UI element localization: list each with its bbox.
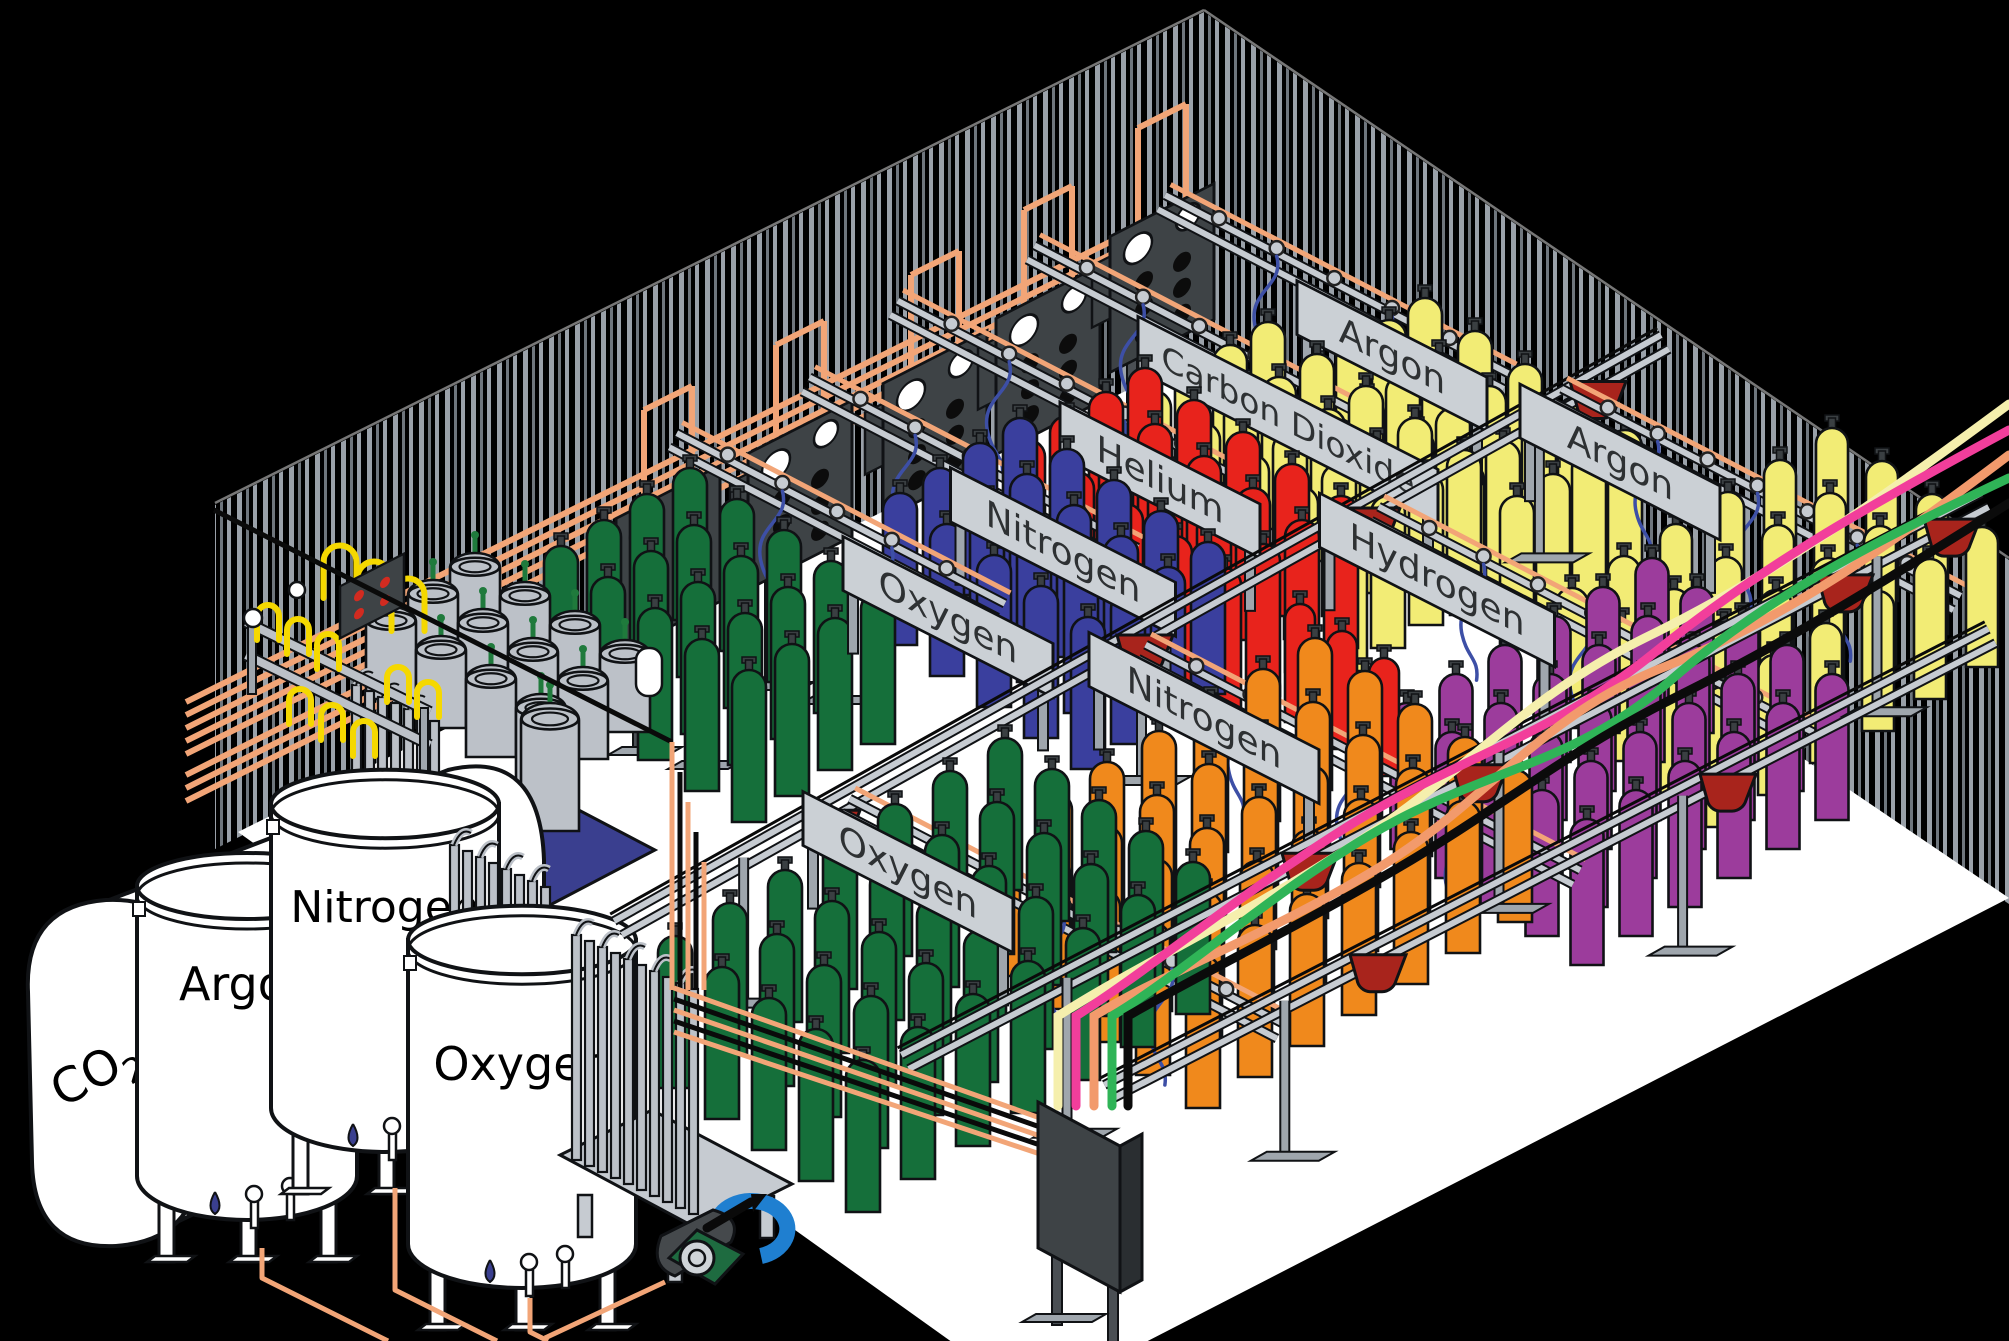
cylinder-body	[685, 639, 719, 791]
cylinder-valve-stem	[1276, 367, 1283, 377]
cylinder-valve-stem	[892, 794, 899, 804]
cylinder-valve-stem	[1002, 728, 1009, 738]
cylinder-valve-stem	[601, 510, 608, 520]
cylinder-valve-stem	[785, 577, 792, 587]
tank-valve	[521, 1254, 537, 1270]
cylinder-valve-stem	[1080, 918, 1087, 928]
cylinder-valve-stem	[1550, 464, 1557, 474]
cylinder-valve-stem	[1829, 664, 1836, 674]
cylinder-body	[818, 618, 852, 770]
cylinder-valve-stem	[1412, 694, 1419, 704]
hose-fitting	[775, 476, 789, 490]
tank-valve	[557, 1246, 573, 1262]
cylinder-valve-stem	[781, 520, 788, 530]
cylinder-valve-stem	[1143, 821, 1150, 831]
dewar-valve-knob	[521, 560, 529, 568]
vaporizer-tube	[572, 935, 581, 1160]
vaporizer-tube	[689, 989, 698, 1214]
cylinder-valve-stem	[1671, 579, 1678, 589]
hose-fitting	[830, 504, 844, 518]
cylinder-body	[732, 670, 766, 822]
cylinder-valve-stem	[970, 984, 977, 994]
cylinder-valve-stem	[1929, 484, 1936, 494]
cylinder-valve-stem	[789, 634, 796, 644]
gas-cylinder	[818, 605, 852, 770]
hose-fitting	[1192, 319, 1206, 333]
cylinder-valve-stem	[1250, 478, 1257, 488]
rim-clip	[267, 820, 279, 834]
gas-cylinder	[775, 631, 809, 796]
cylinder-valve-stem	[774, 924, 781, 934]
cylinder-valve-stem	[1206, 754, 1213, 764]
dewar-valve-knob	[571, 589, 579, 597]
panel-foot	[1022, 1314, 1106, 1322]
cylinder-valve-stem	[1049, 759, 1056, 769]
vaporizer-tube	[624, 959, 633, 1184]
tank-valve	[384, 1118, 400, 1134]
cylinder-valve-stem	[1265, 312, 1272, 322]
cylinder-valve-stem	[1205, 532, 1212, 542]
tank-foot	[418, 1324, 466, 1330]
hose-fitting	[1136, 290, 1150, 304]
cylinder-valve-stem	[1621, 546, 1628, 556]
cylinder-valve-stem	[829, 891, 836, 901]
hose-fitting	[1422, 521, 1436, 535]
canister	[636, 648, 662, 696]
cylinder-valve-stem	[699, 629, 706, 639]
cylinder-valve-stem	[1314, 344, 1321, 354]
cylinder-valve-stem	[1723, 547, 1730, 557]
vaporizer-tube	[676, 983, 685, 1208]
cylinder-valve-stem	[1103, 382, 1110, 392]
cylinder-valve-stem	[868, 986, 875, 996]
hose-fitting	[1701, 452, 1715, 466]
hose-fitting	[945, 317, 959, 331]
cylinder-valve-stem	[1498, 693, 1505, 703]
hose-fitting	[1750, 478, 1764, 492]
cylinder-valve-stem	[977, 433, 984, 443]
cylinder-valve-stem	[1299, 510, 1306, 520]
pump-inlet	[680, 1241, 714, 1275]
rim-clip	[133, 902, 145, 916]
cylinder-valve-stem	[605, 567, 612, 577]
cylinder-valve-stem	[1339, 621, 1346, 631]
cylinder-valve-stem	[1260, 659, 1267, 669]
cylinder-valve-stem	[1033, 887, 1040, 897]
cylinder-valve-stem	[1725, 482, 1732, 492]
vaporizer-tube	[585, 941, 594, 1166]
cylinder-valve-stem	[738, 546, 745, 556]
cylinder-valve-stem	[1190, 852, 1197, 862]
cylinder-valve-stem	[1731, 722, 1738, 732]
cylinder-valve-stem	[1775, 515, 1782, 525]
hose-fitting	[1060, 377, 1074, 391]
cylinder-valve-stem	[994, 792, 1001, 802]
cylinder-valve-stem	[687, 458, 694, 468]
rail-post-foot	[1251, 1152, 1335, 1161]
cylinder-valve-stem	[1071, 495, 1078, 505]
cylinder-valve-stem	[1240, 422, 1247, 432]
plant-diagram: ArgonCarbon DioxideHeliumNitrogenOxygenC…	[0, 0, 2009, 1341]
cylinder-valve-stem	[1645, 606, 1652, 616]
hose-fitting	[1800, 504, 1814, 518]
cylinder-valve-stem	[1637, 722, 1644, 732]
dewar-valve-knob	[621, 618, 629, 626]
cylinder-valve-stem	[937, 458, 944, 468]
cylinder-valve-stem	[766, 988, 773, 998]
vaporizer-tube	[650, 971, 659, 1196]
cylinder-valve-stem	[719, 957, 726, 967]
hose-fitting	[940, 561, 954, 575]
cylinder-valve-stem	[1085, 607, 1092, 617]
cylinder-valve-stem	[727, 893, 734, 903]
dewar-valve-knob	[471, 531, 479, 539]
cylinder-valve-stem	[1649, 548, 1656, 558]
cylinder-valve-stem	[1118, 526, 1125, 536]
cylinder-valve-stem	[1191, 390, 1198, 400]
gas-cylinder	[1816, 661, 1849, 820]
cylinder-valve-stem	[1025, 951, 1032, 961]
cylinder-valve-stem	[1522, 354, 1529, 364]
cylinder-valve-stem	[832, 608, 839, 618]
cylinder-valve-stem	[1201, 446, 1208, 456]
cylinder-valve-stem	[746, 660, 753, 670]
cylinder-valve-stem	[1877, 516, 1884, 526]
cylinder-valve-stem	[1381, 648, 1388, 658]
cylinder-valve-stem	[1412, 408, 1419, 418]
hose-fitting	[1477, 549, 1491, 563]
vaporizer-tube	[663, 977, 672, 1202]
cylinder-valve-stem	[1422, 288, 1429, 298]
cylinder-valve-stem	[1325, 399, 1332, 409]
hose-fitting	[1601, 401, 1615, 415]
cylinder-valve-stem	[1227, 335, 1234, 345]
cylinder-valve-stem	[923, 953, 930, 963]
cylinder-valve-stem	[947, 761, 954, 771]
vaporizer-tube	[598, 947, 607, 1172]
cylinder-valve-stem	[1569, 578, 1576, 588]
dewar-valve-knob	[579, 645, 587, 653]
cylinder-valve-stem	[986, 856, 993, 866]
cylinder-valve-stem	[644, 484, 651, 494]
hose-fitting	[1080, 261, 1094, 275]
cylinder-valve-stem	[691, 515, 698, 525]
tank-foot	[309, 1256, 357, 1262]
cylinder-valve-stem	[1363, 376, 1370, 386]
cylinder-valve-stem	[1362, 661, 1369, 671]
cylinder-valve-stem	[1462, 727, 1469, 737]
cylinder-valve-stem	[897, 483, 904, 493]
hose-fitting	[853, 392, 867, 406]
tank-foot	[147, 1256, 195, 1262]
rail-post-foot	[1649, 947, 1733, 956]
hose-fitting	[1651, 427, 1665, 441]
cylinder-valve-stem	[1358, 789, 1365, 799]
cylinder-valve-stem	[1204, 818, 1211, 828]
hose-fitting	[1219, 982, 1233, 996]
cylinder-valve-stem	[652, 598, 659, 608]
gas-cylinder	[1767, 690, 1800, 849]
tank-foot	[281, 1188, 329, 1194]
vaporizer-tube	[611, 953, 620, 1178]
cylinder-valve-stem	[1633, 780, 1640, 790]
hose-fitting	[908, 420, 922, 434]
cylinder-valve-stem	[1584, 809, 1591, 819]
rim-clip	[404, 956, 416, 970]
cylinder-valve-stem	[1312, 628, 1319, 638]
panel-side	[1120, 1134, 1142, 1292]
cylinder-valve-stem	[648, 541, 655, 551]
cylinder-valve-stem	[1829, 418, 1836, 428]
dewar-valve-knob	[529, 616, 537, 624]
vaporizer-tube	[637, 965, 646, 1190]
cylinder-valve-stem	[1024, 464, 1031, 474]
cylinder-valve-stem	[813, 1019, 820, 1029]
cylinder-valve-stem	[1472, 321, 1479, 331]
gauge	[244, 609, 262, 627]
cylinder-valve-stem	[558, 536, 565, 546]
cylinder-valve-stem	[1104, 752, 1111, 762]
cylinder-valve-stem	[1449, 722, 1456, 732]
cylinder-valve-stem	[1410, 758, 1417, 768]
gas-cylinder	[732, 657, 766, 822]
cylinder-valve-stem	[1158, 501, 1165, 511]
gauge	[289, 582, 305, 598]
cylinder-valve-stem	[1088, 854, 1095, 864]
hose-fitting	[1189, 659, 1203, 673]
cylinder-valve-stem	[1165, 557, 1172, 567]
cylinder-valve-stem	[1596, 635, 1603, 645]
cylinder-valve-stem	[1338, 486, 1345, 496]
cylinder-valve-stem	[1096, 790, 1103, 800]
hose-fitting	[1850, 530, 1864, 544]
hose-fitting	[721, 448, 735, 462]
cylinder-valve-stem	[876, 922, 883, 932]
cylinder-valve-stem	[1777, 450, 1784, 460]
cylinder-valve-stem	[1360, 725, 1367, 735]
cylinder-valve-stem	[1600, 577, 1607, 587]
hose-fitting	[1327, 271, 1341, 285]
rail-post-foot	[1505, 553, 1589, 562]
cylinder-valve-stem	[915, 1017, 922, 1027]
dewar-valve-knob	[479, 587, 487, 595]
plant-diagram-stage: Industrial gas cylinder filling plant — …	[0, 0, 2009, 1341]
cylinder-valve-stem	[1588, 751, 1595, 761]
tank-foot	[588, 1324, 636, 1330]
cylinder-valve-stem	[1135, 885, 1142, 895]
cylinder-valve-stem	[1297, 594, 1304, 604]
hose-fitting	[1531, 577, 1545, 591]
dewar-valve-knob	[429, 558, 437, 566]
cylinder-valve-stem	[939, 825, 946, 835]
cylinder-valve-stem	[1453, 664, 1460, 674]
cylinder-valve-stem	[734, 489, 741, 499]
cylinder-valve-stem	[1152, 414, 1159, 424]
cylinder-valve-stem	[1514, 486, 1521, 496]
cylinder-valve-stem	[1356, 853, 1363, 863]
cylinder-valve-stem	[1408, 822, 1415, 832]
cylinder-valve-stem	[742, 603, 749, 613]
cylinder-body	[775, 644, 809, 796]
cylinder-valve-stem	[1827, 483, 1834, 493]
cylinder-valve-stem	[695, 572, 702, 582]
cylinder-valve-stem	[1694, 577, 1701, 587]
cylinder-valve-stem	[1682, 751, 1689, 761]
cylinder-valve-stem	[1041, 823, 1048, 833]
hose-fitting	[1002, 347, 1016, 361]
cylinder-valve-stem	[782, 860, 789, 870]
tank-foot	[229, 1256, 277, 1262]
cylinder-valve-stem	[821, 955, 828, 965]
cylinder-valve-stem	[1310, 692, 1317, 702]
cylinder-valve-stem	[1038, 576, 1045, 586]
hose-fitting	[1212, 211, 1226, 225]
tank-valve	[246, 1186, 262, 1202]
cylinder-valve-stem	[1111, 470, 1118, 480]
cylinder-valve-stem	[1879, 451, 1886, 461]
cylinder-valve-stem	[1386, 310, 1393, 320]
gas-cylinder	[685, 626, 719, 791]
cylinder-valve-stem	[1825, 548, 1832, 558]
cylinder-valve-stem	[1142, 358, 1149, 368]
cylinder-valve-stem	[1289, 454, 1296, 464]
platform-leg	[578, 1195, 592, 1237]
hose-fitting	[1270, 241, 1284, 255]
cylinder-valve-stem	[828, 551, 835, 561]
cylinder-valve-stem	[1154, 785, 1161, 795]
cylinder-valve-stem	[1017, 408, 1024, 418]
cylinder-valve-stem	[1256, 787, 1263, 797]
cylinder-valve-stem	[1780, 693, 1787, 703]
hose-fitting	[885, 533, 899, 547]
cylinder-valve-stem	[1064, 439, 1071, 449]
